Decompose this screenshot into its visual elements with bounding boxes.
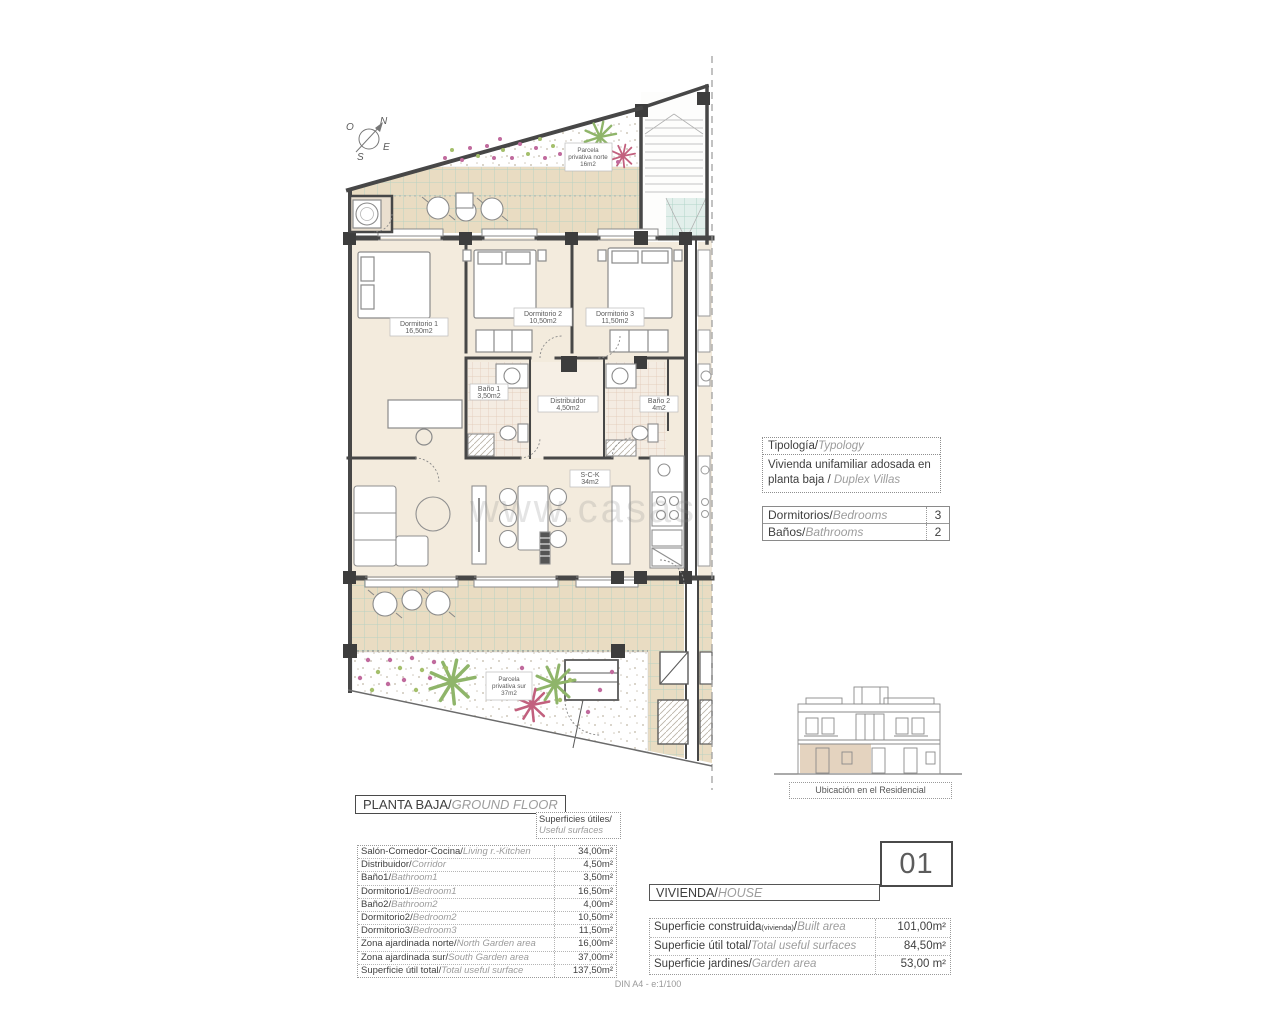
row-label-en: Corridor	[412, 859, 446, 870]
rooms-count-table: Dormitorios/Bedrooms 3 Baños/Bathrooms 2	[762, 506, 950, 541]
svg-text:Dormitorio 3: Dormitorio 3	[596, 311, 634, 318]
row-label-es: Superficie construida	[654, 921, 761, 933]
svg-text:Dormitorio 1: Dormitorio 1	[400, 321, 438, 328]
row-label-en: Bathrooms	[805, 525, 863, 539]
useful-surfaces-header: Superficies útiles/ Useful surfaces	[536, 812, 621, 839]
table-row: Dormitorio3/Bedroom311,50m²	[358, 924, 616, 937]
table-row: Dormitorios/Bedrooms 3	[763, 507, 949, 523]
svg-text:O: O	[346, 122, 354, 133]
table-row: Superficie construida(vivienda)/Built ar…	[650, 919, 950, 937]
row-label-en: Garden area	[752, 958, 817, 970]
svg-text:Dormitorio 2: Dormitorio 2	[524, 311, 562, 318]
plan-sheet: N O E S www.casas Dormitorio 1 16,50m2 D…	[0, 0, 1280, 1024]
row-label-es: Zona ajardinada norte/	[361, 938, 457, 949]
svg-text:Distribuidor: Distribuidor	[550, 398, 586, 405]
label-parcela-sur: Parcela privativa sur 37m2	[486, 672, 532, 700]
header-es: Superficies útiles/	[539, 814, 612, 824]
row-label-en: Bathroom2	[391, 899, 437, 910]
label-dormitorio1: Dormitorio 1 16,50m2	[390, 318, 448, 336]
location-caption: Ubicación en el Residencial	[789, 782, 952, 799]
row-value: 34,00m²	[554, 846, 616, 858]
compass-icon: N O E S	[346, 116, 390, 163]
table-row: Superficie útil total/Total useful surfa…	[650, 937, 950, 956]
row-value: 37,00m²	[554, 952, 616, 964]
row-label-es: Superficie útil total/	[361, 965, 441, 976]
table-row: Baño2/Bathroom24,00m²	[358, 898, 616, 911]
floor-plan-drawing: N O E S www.casas Dormitorio 1 16,50m2 D…	[0, 0, 1280, 1024]
row-value: 53,00 m²	[875, 956, 950, 974]
svg-text:Parcela: Parcela	[577, 147, 599, 154]
row-value: 4,50m²	[554, 859, 616, 871]
svg-text:Parcela: Parcela	[498, 676, 520, 683]
house-title-bar: VIVIENDA/HOUSE	[649, 884, 880, 901]
row-value: 137,50m²	[554, 965, 616, 977]
label-dormitorio3: Dormitorio 3 11,50m2	[586, 308, 644, 326]
unit-number-box: 01	[880, 841, 953, 887]
row-label-es: Dormitorio2/	[361, 912, 413, 923]
scale-note: DIN A4 - e:1/100	[548, 979, 748, 989]
row-label-en: South Garden area	[448, 952, 529, 963]
svg-text:11,50m2: 11,50m2	[602, 318, 629, 325]
row-label-en: Total useful surface	[441, 965, 523, 976]
row-value: 101,00m²	[875, 919, 950, 937]
label-parcela-norte: Parcela privativa norte 16m2	[565, 143, 612, 171]
svg-text:10,50m2: 10,50m2	[529, 318, 556, 325]
svg-text:34m2: 34m2	[581, 479, 599, 486]
row-label-en: North Garden area	[457, 938, 536, 949]
svg-text:S-C-K: S-C-K	[580, 472, 599, 479]
svg-text:E: E	[383, 142, 390, 153]
label-dormitorio2: Dormitorio 2 10,50m2	[514, 308, 572, 326]
row-label-en: Bedroom1	[413, 886, 457, 897]
svg-text:privativa norte: privativa norte	[568, 154, 608, 161]
typology-label-es: Tipología/	[768, 440, 818, 452]
typology-box: Tipología/Typology Vivienda unifamiliar …	[762, 437, 941, 493]
row-label-es: Baño1/	[361, 872, 391, 883]
label-sck: S-C-K 34m2	[570, 470, 610, 487]
typology-header: Tipología/Typology	[763, 438, 940, 455]
row-label-es: Superficie jardines/	[654, 958, 752, 970]
label-bano2: Baño 2 4m2	[640, 396, 678, 412]
typology-label-en: Typology	[818, 440, 864, 452]
table-row: Zona ajardinada norte/North Garden area1…	[358, 937, 616, 950]
watermark-text: www.casas	[469, 487, 697, 531]
typology-value: Vivienda unifamiliar adosada en planta b…	[763, 455, 940, 492]
row-label-en: Bedroom2	[413, 912, 457, 923]
row-label-en: Bathroom1	[391, 872, 437, 883]
staircase	[635, 86, 710, 243]
row-label-es: Dormitorios/	[768, 508, 833, 522]
table-row: Dormitorio1/Bedroom116,50m²	[358, 885, 616, 898]
row-label-en: Bedrooms	[833, 508, 888, 522]
table-row-total: Superficie útil total/Total useful surfa…	[358, 964, 616, 977]
typology-value-en: Duplex Villas	[834, 474, 900, 486]
table-row: Dormitorio2/Bedroom210,50m²	[358, 911, 616, 924]
elevation-sketch	[774, 687, 962, 774]
useful-surfaces-table: Salón-Comedor-Cocina/Living r.-Kitchen34…	[357, 845, 617, 978]
header-en: Useful surfaces	[539, 825, 603, 835]
table-row: Baño1/Bathroom13,50m²	[358, 871, 616, 884]
svg-text:N: N	[380, 116, 388, 127]
svg-text:16m2: 16m2	[580, 161, 596, 168]
row-value: 10,50m²	[554, 912, 616, 924]
row-value: 16,00m²	[554, 938, 616, 950]
house-label-es: VIVIENDA/	[656, 886, 718, 900]
label-bano1: Baño 1 3,50m2	[470, 384, 508, 400]
svg-text:3,50m2: 3,50m2	[477, 393, 500, 400]
row-label-es: Distribuidor/	[361, 859, 412, 870]
row-label-en: Built area	[797, 921, 846, 933]
title-en: GROUND FLOOR	[452, 797, 558, 812]
svg-text:4,50m2: 4,50m2	[556, 405, 579, 412]
bathrooms-count: 2	[926, 524, 949, 540]
row-label-es: Superficie útil total/	[654, 940, 751, 952]
svg-text:privativa sur: privativa sur	[492, 683, 526, 690]
row-label-es: Zona ajardinada sur/	[361, 952, 448, 963]
svg-text:Baño 2: Baño 2	[648, 398, 670, 405]
row-label-es: Baños/	[768, 525, 805, 539]
label-distribuidor: Distribuidor 4,50m2	[538, 396, 598, 412]
ground-floor-title: PLANTA BAJA/GROUND FLOOR	[355, 795, 566, 814]
row-value: 16,50m²	[554, 886, 616, 898]
row-value: 11,50m²	[554, 925, 616, 937]
svg-text:4m2: 4m2	[652, 405, 666, 412]
bedrooms-count: 3	[926, 507, 949, 523]
house-surfaces-table: Superficie construida(vivienda)/Built ar…	[649, 918, 951, 975]
table-row: Salón-Comedor-Cocina/Living r.-Kitchen34…	[358, 846, 616, 858]
row-label-es: Dormitorio3/	[361, 925, 413, 936]
house-label-en: HOUSE	[718, 886, 762, 900]
table-row: Baños/Bathrooms 2	[763, 523, 949, 540]
row-value: 4,00m²	[554, 899, 616, 911]
row-label-sub: (vivienda)	[761, 923, 794, 932]
svg-text:16,50m2: 16,50m2	[405, 328, 432, 335]
table-row: Distribuidor/Corridor4,50m²	[358, 858, 616, 871]
row-label-es: Baño2/	[361, 899, 391, 910]
row-label-es: Salón-Comedor-Cocina/	[361, 846, 463, 857]
row-value: 3,50m²	[554, 872, 616, 884]
svg-text:S: S	[357, 152, 364, 163]
row-label-en: Bedroom3	[413, 925, 457, 936]
table-row: Superficie jardines/Garden area 53,00 m²	[650, 955, 950, 974]
svg-text:Baño 1: Baño 1	[478, 386, 500, 393]
table-row: Zona ajardinada sur/South Garden area37,…	[358, 951, 616, 964]
row-label-en: Total useful surfaces	[751, 940, 856, 952]
row-label-es: Dormitorio1/	[361, 886, 413, 897]
row-value: 84,50m²	[875, 938, 950, 956]
svg-text:37m2: 37m2	[501, 690, 517, 697]
title-es: PLANTA BAJA/	[363, 797, 452, 812]
row-label-en: Living r.-Kitchen	[463, 846, 531, 857]
